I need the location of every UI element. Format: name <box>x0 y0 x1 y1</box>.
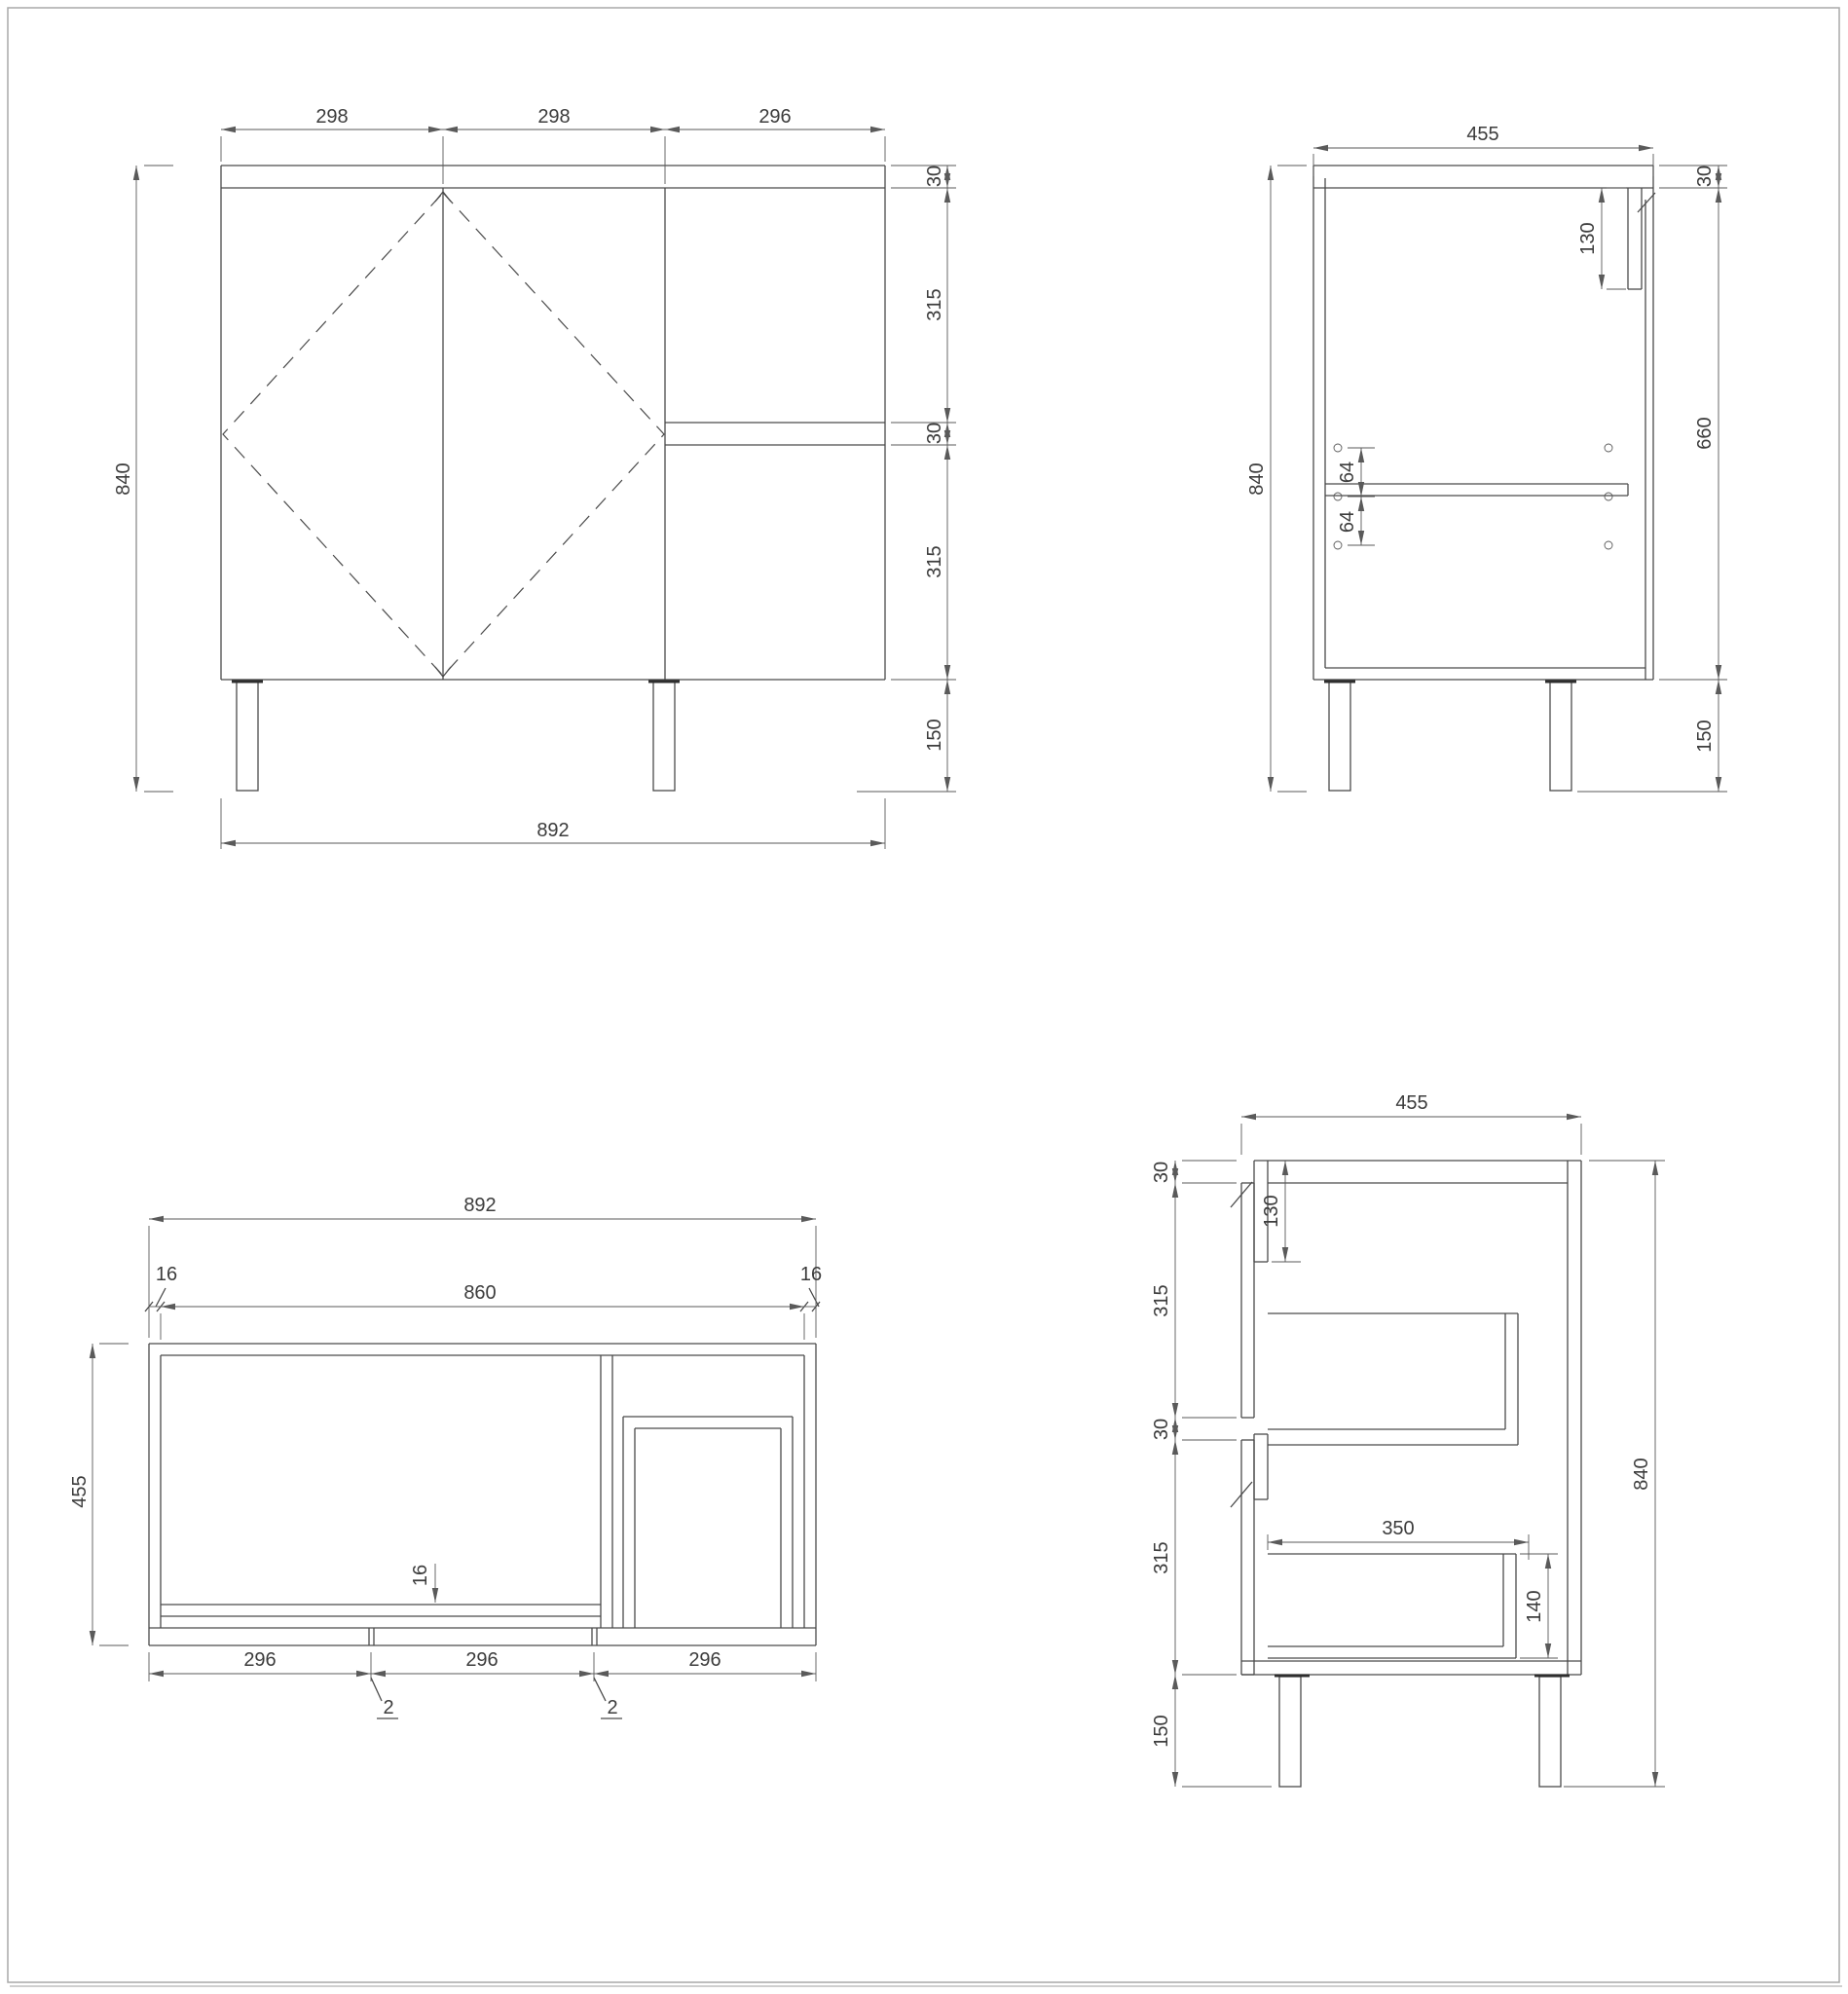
dim-label-door_gaps-0: 2 <box>383 1697 393 1718</box>
dim-label-right_stack-3: 315 <box>924 545 945 577</box>
plan-outline <box>156 1288 166 1307</box>
dim-label-dims-total_width: 892 <box>536 820 569 841</box>
dim-label-right_stack-1: 315 <box>924 288 945 320</box>
dim-label-right_stack-4: 150 <box>924 719 945 751</box>
dim-label-left_stack-3: 315 <box>1151 1541 1172 1573</box>
section-leg <box>1279 1677 1301 1787</box>
dim-label-dims-width: 455 <box>1395 1092 1427 1114</box>
side-shelf-pin-hole <box>1334 444 1342 452</box>
dim-label-dims-rail_height: 130 <box>1261 1195 1282 1227</box>
dim-label-dims-total_width: 892 <box>463 1195 496 1216</box>
dim-label-door_widths-2: 296 <box>688 1649 721 1671</box>
front-elevation-view: 2982982968403031530315150892 <box>113 106 956 849</box>
side-outline <box>1638 193 1655 212</box>
dim-label-right_stack-0: 30 <box>924 166 945 187</box>
dim-label-dims-height: 840 <box>113 462 134 495</box>
dim-label-dims-rail_height: 130 <box>1577 222 1599 254</box>
dim-label-side_thickness-1: 16 <box>800 1264 822 1285</box>
dim-label-dims-inner_width: 860 <box>463 1282 496 1304</box>
side-elevation-view: 455840130646430660150 <box>1246 124 1727 792</box>
dim-label-dims-width: 455 <box>1466 124 1498 145</box>
dim-label-width_segments-2: 296 <box>758 106 791 128</box>
dim-label-right_stack-0: 30 <box>1694 166 1716 187</box>
dim-label-left_stack-4: 150 <box>1151 1715 1172 1747</box>
drawing-sheet: 2982982968403031530315150892 45584013064… <box>0 0 1848 1994</box>
dim-label-door_widths-0: 296 <box>243 1649 276 1671</box>
side-shelf-pin-hole <box>1605 493 1612 500</box>
dim-label-right_stack-2: 150 <box>1694 720 1716 752</box>
dim-label-side_thickness-0: 16 <box>156 1264 177 1285</box>
plan-view: 89216860164551629629629622 <box>69 1195 822 1718</box>
section-leg <box>1539 1677 1561 1787</box>
side-shelf-pin-hole <box>1605 541 1612 549</box>
dim-label-dims-height: 840 <box>1631 1458 1652 1490</box>
side-leg <box>1550 682 1571 791</box>
dim-label-right_stack-2: 30 <box>924 423 945 444</box>
dim-label-door_widths-1: 296 <box>465 1649 498 1671</box>
side-shelf-pin-hole <box>1334 493 1342 500</box>
dim-label-dims-drawer_box_height: 140 <box>1524 1590 1545 1622</box>
dim-label-dims-depth: 455 <box>69 1475 91 1507</box>
dim-label-left_stack-0: 30 <box>1151 1162 1172 1183</box>
plan-outline <box>809 1288 819 1307</box>
dim-label-dims-height: 840 <box>1246 462 1268 495</box>
plan-outline <box>371 1678 382 1701</box>
technical-drawing: 2982982968403031530315150892 45584013064… <box>0 0 1848 1994</box>
dim-label-left_stack-2: 30 <box>1151 1419 1172 1440</box>
dim-label-hole_spacing-1: 64 <box>1337 511 1358 533</box>
dim-label-width_segments-1: 298 <box>537 106 570 128</box>
front-leg <box>237 682 258 791</box>
dim-label-hole_spacing-0: 64 <box>1337 462 1358 483</box>
side-section-view: 4553031530315150840130350140 <box>1151 1092 1665 1787</box>
side-shelf-pin-hole <box>1334 541 1342 549</box>
dim-label-right_stack-1: 660 <box>1694 417 1716 449</box>
dim-label-door_gaps-1: 2 <box>607 1697 617 1718</box>
side-leg <box>1329 682 1350 791</box>
front-leg <box>653 682 675 791</box>
dim-label-dims-drawer_depth: 350 <box>1382 1518 1414 1539</box>
dim-label-dims-panel_thickness: 16 <box>410 1565 431 1586</box>
dim-label-width_segments-0: 298 <box>315 106 348 128</box>
side-shelf-pin-hole <box>1605 444 1612 452</box>
plan-outline <box>594 1678 606 1701</box>
dim-label-left_stack-1: 315 <box>1151 1284 1172 1316</box>
